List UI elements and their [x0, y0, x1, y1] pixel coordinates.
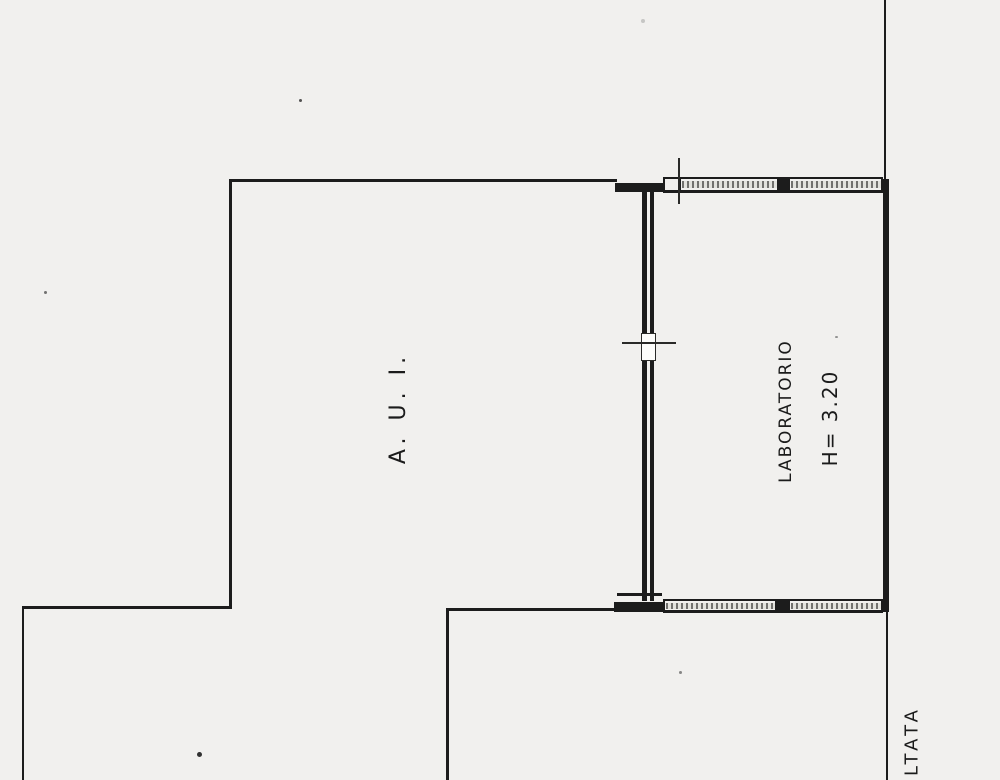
window-band-bottom-inner-line [663, 610, 883, 613]
window-band-top [663, 177, 883, 193]
window-pier-bottom [775, 599, 790, 613]
road-label-partial: LTATA [898, 689, 928, 780]
window-band-top-inner-line [663, 190, 883, 193]
room-height-note-laboratorio: H= 3.20 [815, 368, 845, 468]
window-band-bottom-right-cap [881, 599, 883, 613]
wall-bottom-center-horizontal [446, 608, 617, 611]
boundary-line-left-lower [22, 606, 24, 780]
window-band-bottom-left-cap [663, 599, 665, 613]
wall-bottom-center-vertical [446, 608, 449, 780]
window-glazing-top-left [682, 181, 777, 188]
scan-speck [641, 19, 645, 23]
scan-speck [44, 291, 47, 294]
wall-junction-top-bar [615, 183, 663, 192]
scan-speck [197, 752, 202, 757]
interior-wall-opening [641, 333, 656, 361]
window-band-top-left-cap [663, 177, 665, 193]
scan-speck [299, 99, 302, 102]
window-tick-mark-top [678, 158, 680, 204]
wall-aui-top [230, 179, 617, 182]
boundary-line-right-upper [884, 0, 886, 181]
interior-wall-right-upper [650, 190, 654, 333]
window-band-top-outer-line [663, 177, 883, 179]
wall-junction-bottom-stub [617, 593, 662, 596]
wall-bottom-left-horizontal [23, 606, 232, 609]
interior-wall-left-lower [642, 361, 647, 601]
interior-wall-right-lower [650, 361, 654, 601]
window-band-bottom [663, 599, 883, 613]
room-label-laboratorio: LABORATORIO [773, 336, 799, 486]
wall-junction-bottom-bar [614, 602, 663, 612]
window-band-top-right-cap [881, 177, 883, 193]
scan-speck [835, 336, 838, 338]
wall-aui-left [229, 179, 232, 609]
window-glazing-top-right [791, 181, 881, 188]
floorplan-sheet: A. U. I. LABORATORIO H= 3.20 LTATA [0, 0, 1000, 780]
boundary-line-right-lower [886, 611, 888, 780]
scan-speck [679, 671, 682, 674]
wall-laboratorio-right [883, 179, 889, 612]
room-label-aui: A. U. I. [382, 343, 416, 473]
window-pier-top [777, 177, 790, 193]
interior-wall-tick-mark [622, 342, 676, 344]
interior-wall-left-upper [642, 190, 647, 333]
window-glazing-bottom-right [791, 603, 881, 609]
window-band-bottom-outer-line [663, 599, 883, 601]
window-glazing-bottom-left [666, 603, 775, 609]
